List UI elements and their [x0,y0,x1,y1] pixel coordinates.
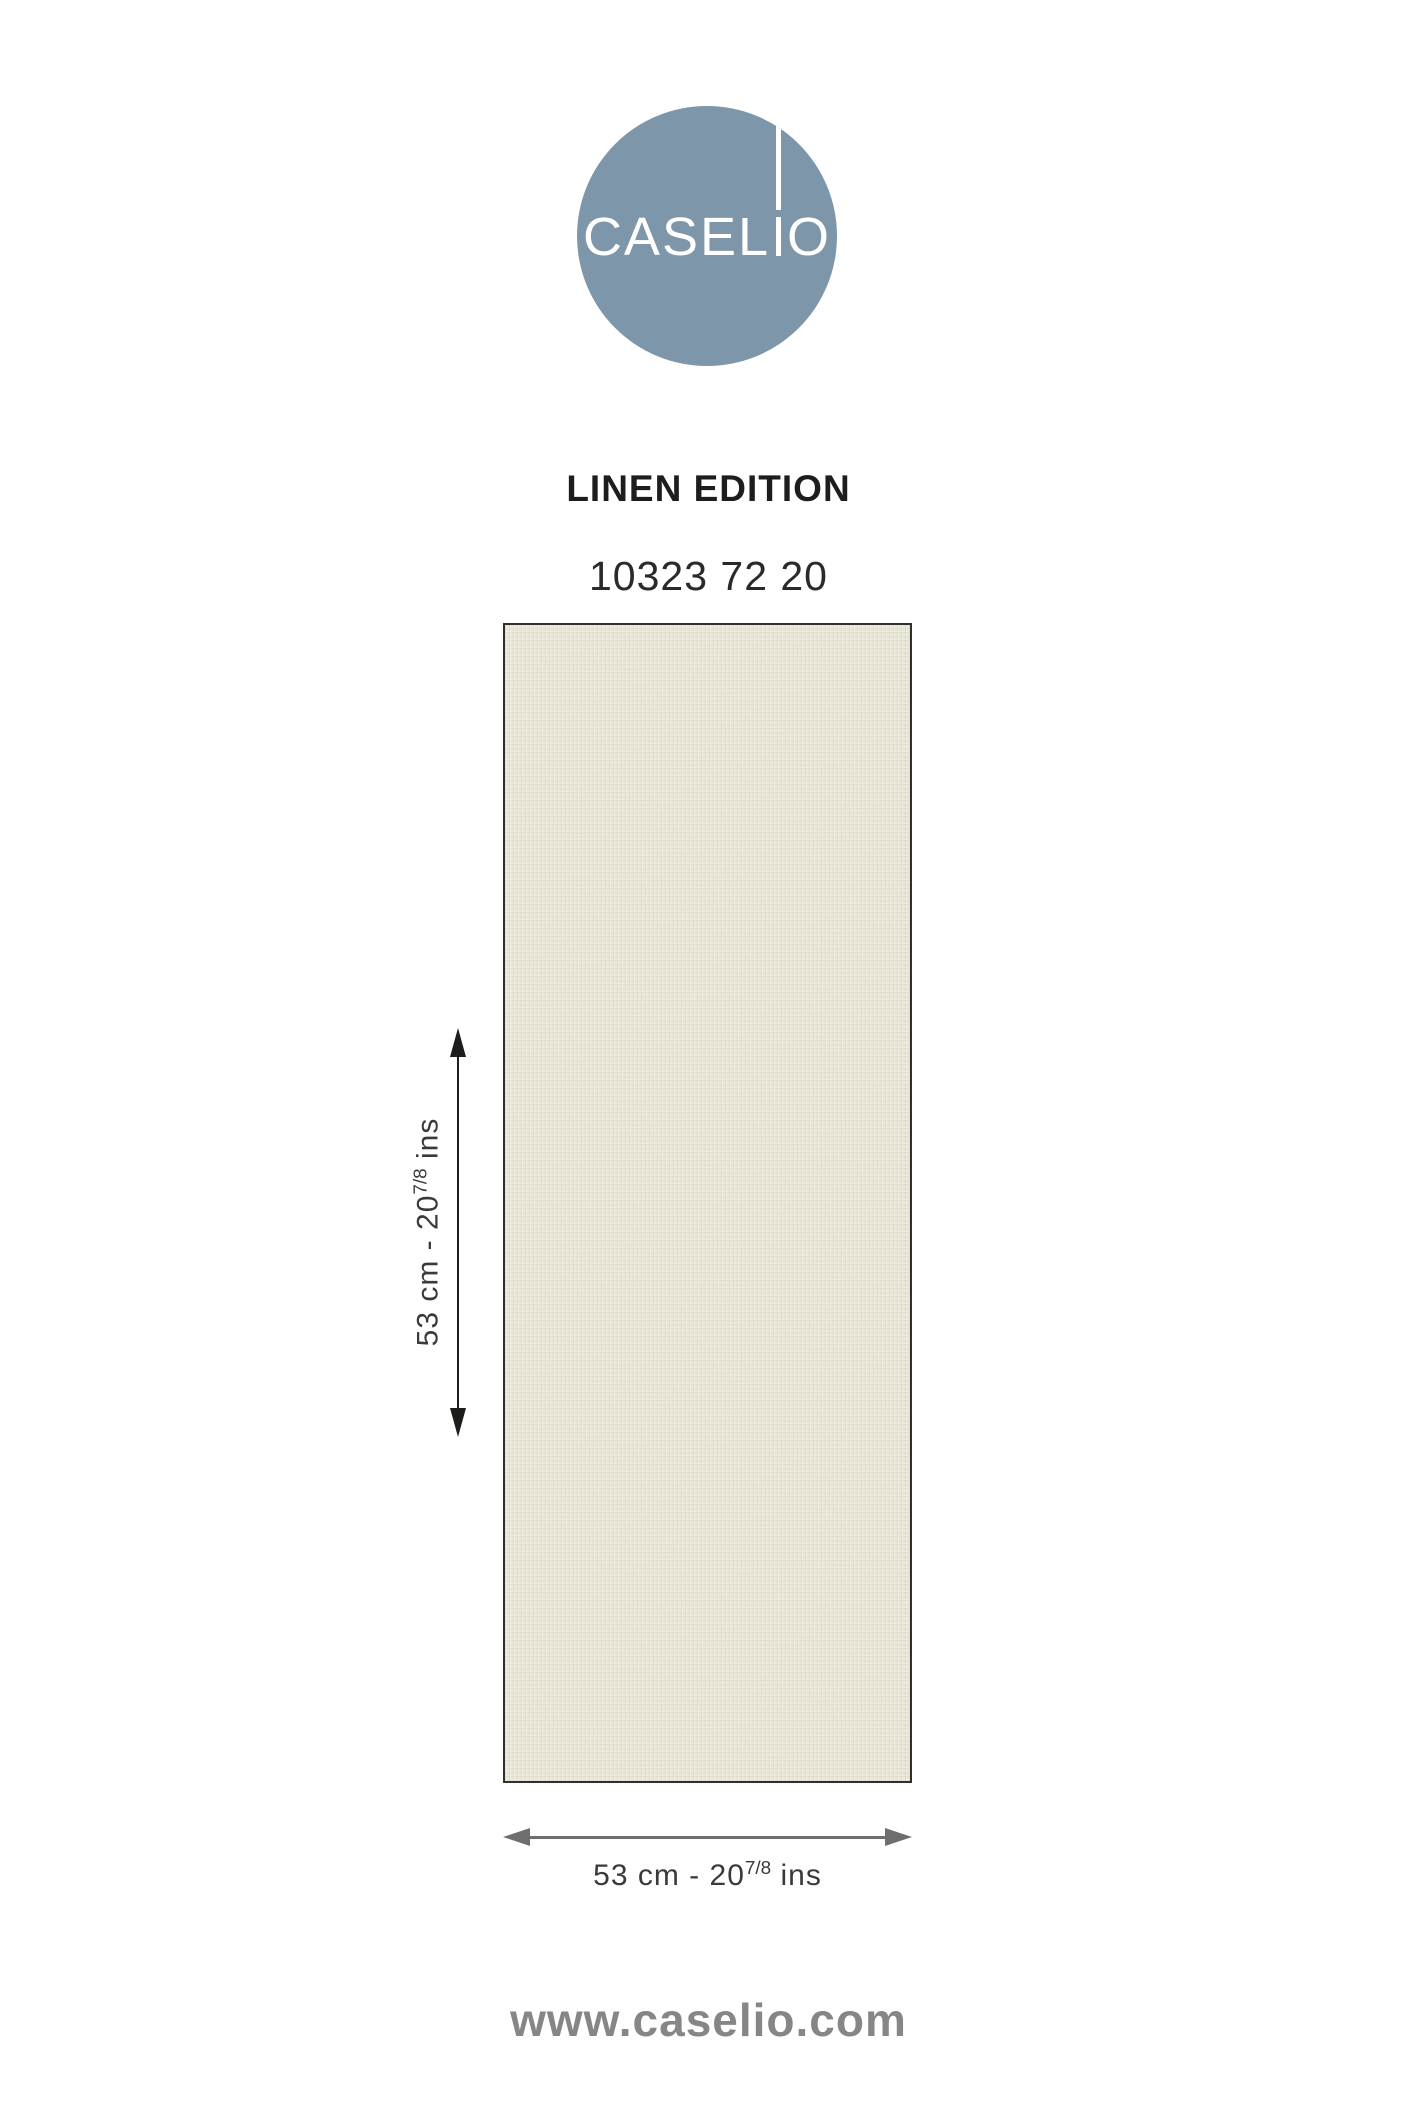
wallpaper-swatch [503,623,912,1783]
logo-letter-i-bar [776,217,781,256]
horizontal-dimension-arrow [518,1836,898,1839]
reference-number: 10323 72 20 [0,553,1417,600]
website-url: www.caselio.com [0,1993,1417,2047]
linen-texture [505,625,910,1781]
collection-title: LINEN EDITION [0,468,1417,510]
horizontal-dimension-unit: ins [771,1859,822,1892]
product-spec-sheet: CASEL O LINEN EDITION 10323 72 20 [0,0,1417,2126]
vertical-dimension-value: 53 cm - 20 [412,1195,445,1347]
horizontal-dimension-label: 53 cm - 207/8 ins [503,1858,912,1893]
vertical-dimension-label: 53 cm - 207/8 ins [411,1118,446,1347]
logo-wordmark: CASEL O [577,208,837,264]
vertical-dimension-unit: ins [412,1118,445,1169]
arrow-down-icon [450,1408,466,1437]
horizontal-dimension-value: 53 cm - 20 [593,1859,745,1892]
logo-text-suffix: O [787,210,831,264]
vertical-dimension-fraction: 7/8 [411,1168,432,1194]
horizontal-dimension-fraction: 7/8 [745,1858,771,1879]
caselio-logo: CASEL O [577,106,837,366]
arrow-right-icon [885,1828,912,1846]
logo-i-riser-line [776,115,781,210]
logo-text-prefix: CASEL [583,210,770,264]
vertical-dimension-arrow [457,1038,459,1420]
